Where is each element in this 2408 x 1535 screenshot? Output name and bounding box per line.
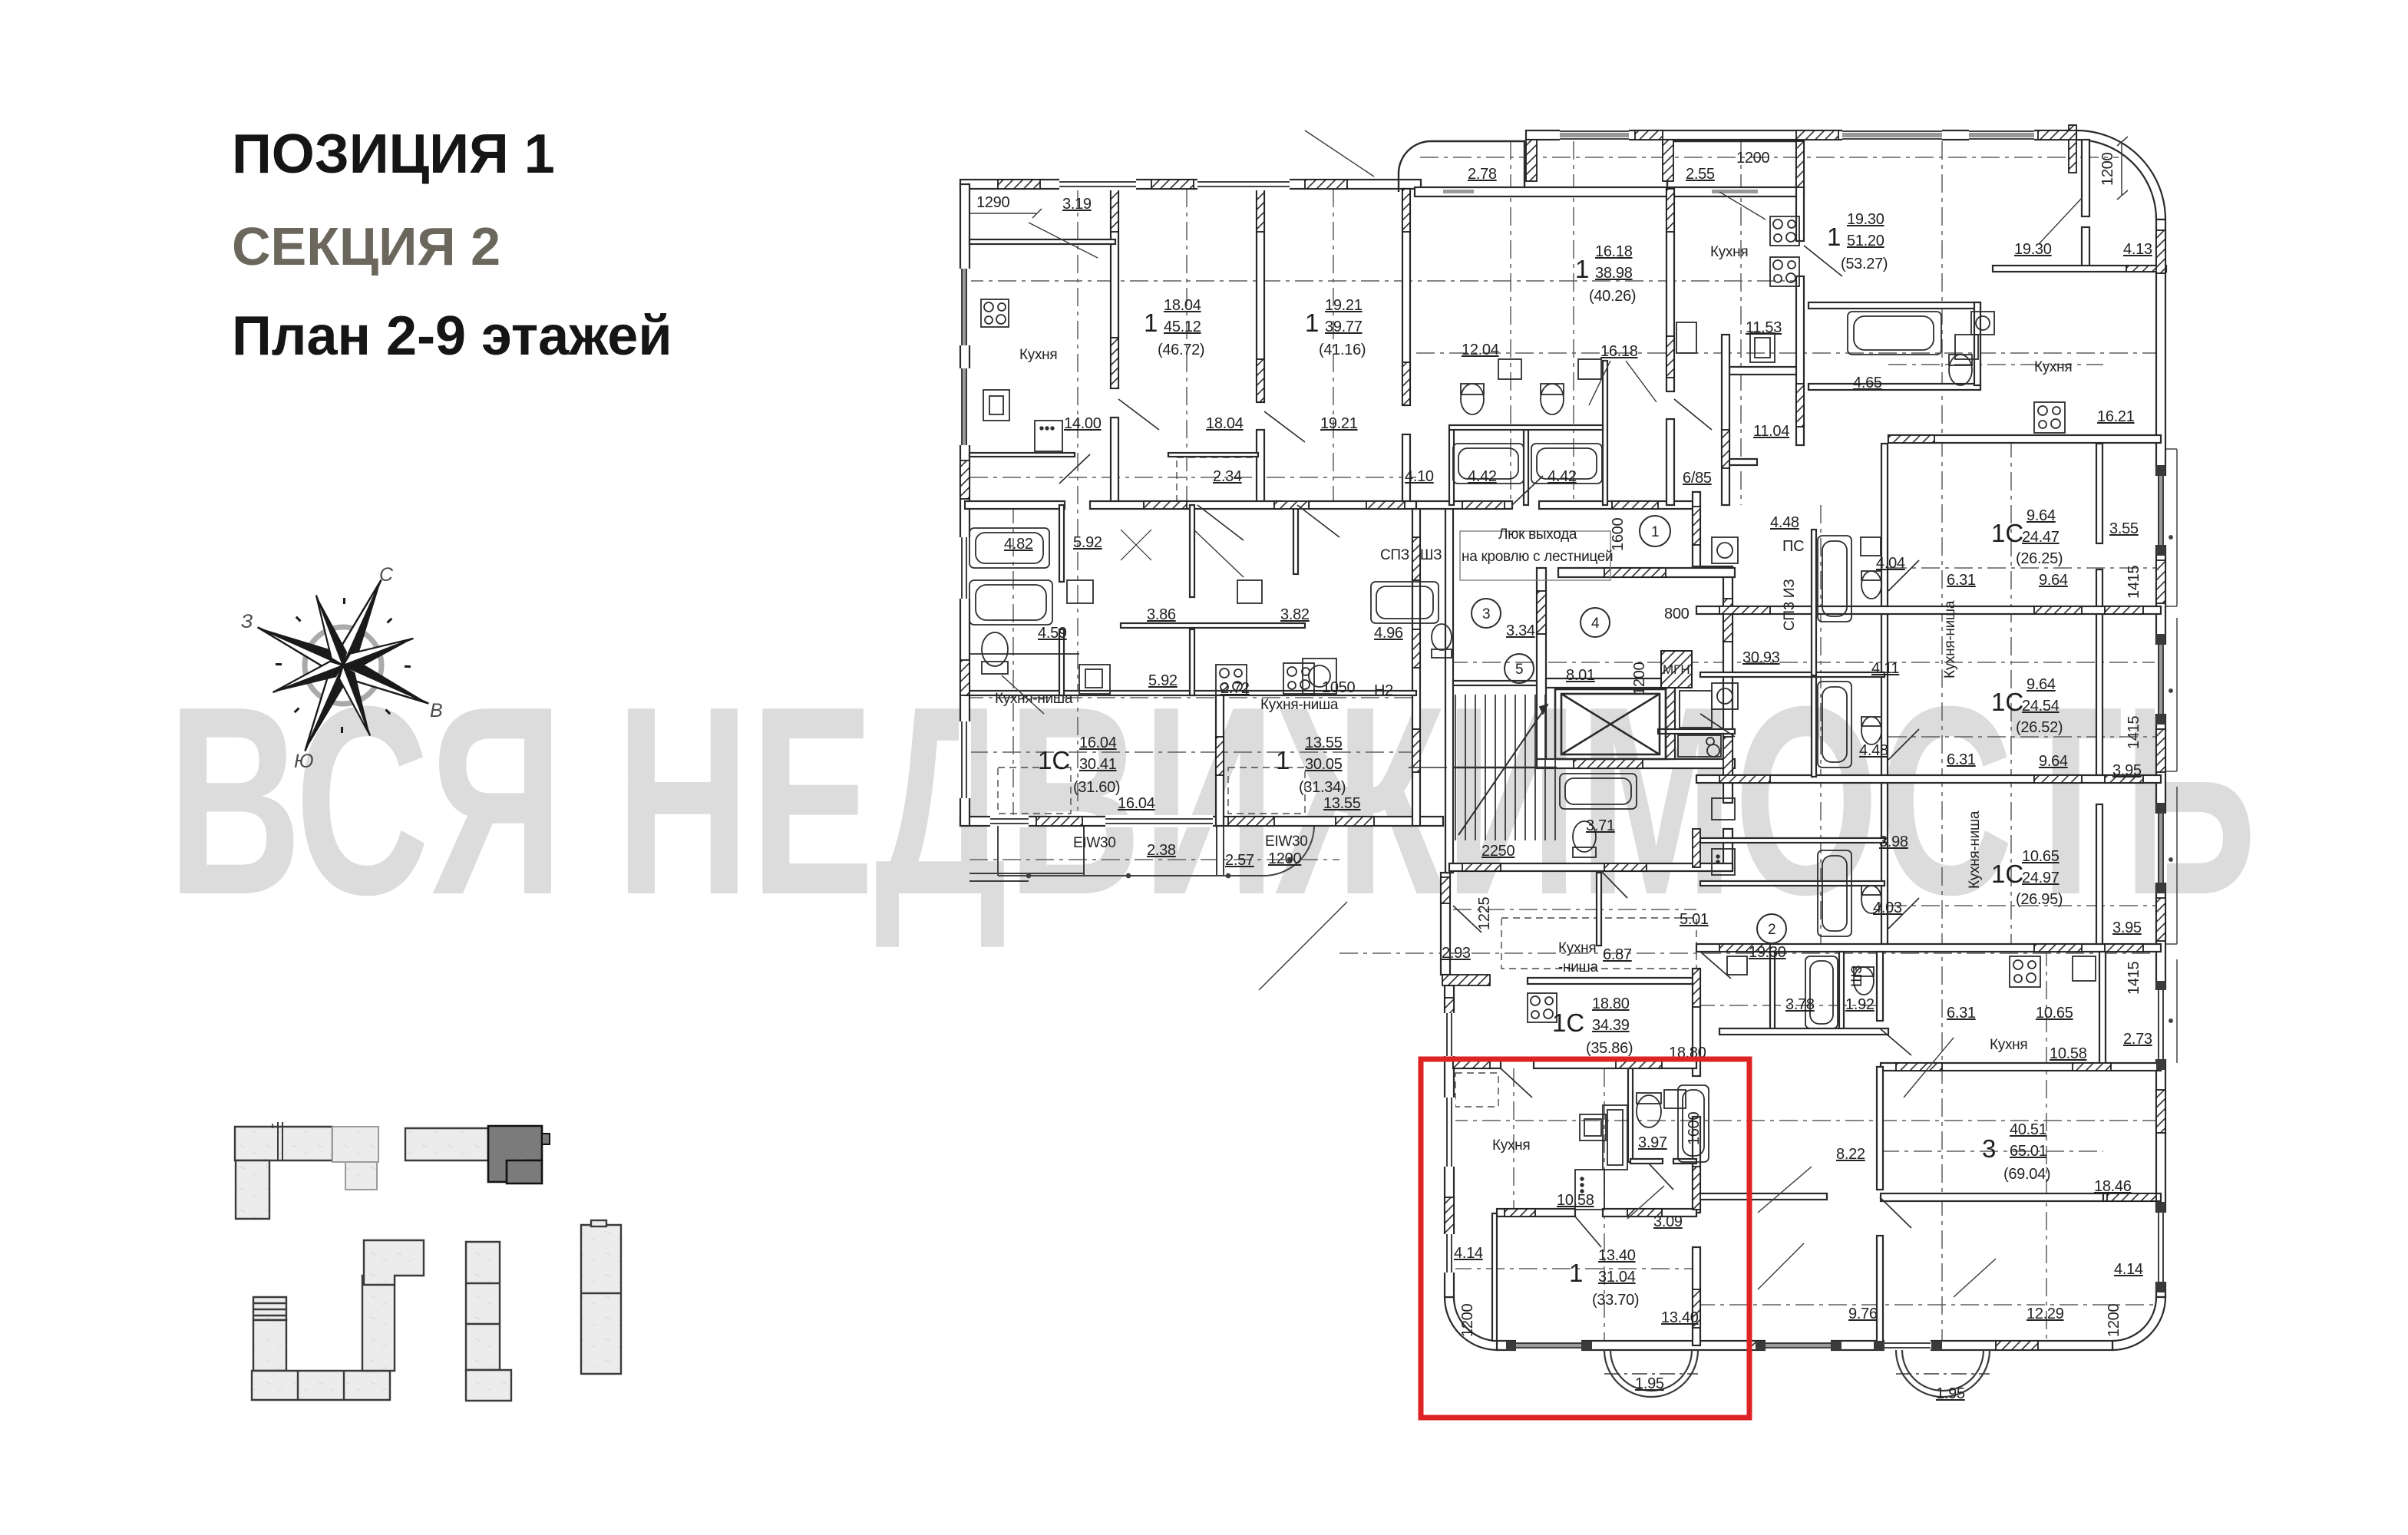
svg-text:1С: 1С [1991,519,2023,547]
svg-text:3.19: 3.19 [1062,196,1092,213]
svg-text:2.72: 2.72 [1221,680,1250,697]
svg-text:(26.95): (26.95) [2016,891,2063,908]
svg-text:8.22: 8.22 [1836,1146,1865,1163]
svg-text:3.97: 3.97 [1638,1134,1667,1151]
svg-text:19.21: 19.21 [1325,297,1363,314]
svg-text:19.30: 19.30 [1847,211,1884,228]
svg-text:18.04: 18.04 [1164,297,1201,314]
svg-text:2.57: 2.57 [1225,852,1254,869]
svg-text:30.41: 30.41 [1079,756,1117,773]
svg-text:2.78: 2.78 [1468,166,1497,183]
svg-text:6/85: 6/85 [1683,470,1712,487]
svg-text:24.47: 24.47 [2022,529,2060,546]
svg-text:(53.27): (53.27) [1841,256,1888,272]
svg-text:4.11: 4.11 [1871,660,1899,677]
svg-text:24.54: 24.54 [2022,698,2060,715]
svg-text:Кухня: Кухня [1492,1137,1530,1154]
svg-text:Кухня: Кухня [1990,1037,2027,1053]
svg-text:3.71: 3.71 [1586,817,1615,834]
svg-text:3.95: 3.95 [2112,919,2142,936]
svg-text:Кухня-ниша: Кухня-ниша [1967,810,1983,889]
svg-text:5.01: 5.01 [1680,911,1709,928]
svg-text:(26.25): (26.25) [2016,550,2063,567]
svg-text:14.00: 14.00 [1064,415,1102,432]
svg-text:16.18: 16.18 [1595,243,1633,260]
svg-text:(35.86): (35.86) [1586,1040,1633,1057]
svg-text:1290: 1290 [976,194,1009,211]
svg-text:Кухня: Кухня [1710,244,1748,260]
svg-text:10.58: 10.58 [2050,1045,2087,1062]
svg-text:2.73: 2.73 [2123,1031,2152,1048]
svg-text:4.82: 4.82 [1004,536,1033,553]
svg-text:3: 3 [1982,1134,1996,1163]
svg-text:3.34: 3.34 [1506,622,1535,639]
svg-text:4.10: 4.10 [1405,468,1434,485]
svg-text:13.40: 13.40 [1661,1309,1699,1326]
svg-text:(46.72): (46.72) [1158,342,1204,358]
svg-text:31.04: 31.04 [1598,1269,1636,1286]
svg-text:19.21: 19.21 [1320,415,1358,432]
svg-text:4.14: 4.14 [1454,1245,1483,1262]
svg-text:Люк выхода: Люк выхода [1498,527,1577,543]
svg-text:4.42: 4.42 [1468,468,1497,485]
svg-text:11.04: 11.04 [1753,423,1789,440]
svg-text:3.55: 3.55 [2109,520,2139,537]
svg-text:5.92: 5.92 [1148,672,1178,689]
svg-text:13.40: 13.40 [1598,1247,1636,1264]
svg-text:1415: 1415 [2126,962,2142,995]
svg-text:9.64: 9.64 [2039,753,2068,770]
svg-text:Кухня-ниша: Кухня-ниша [995,691,1073,707]
svg-text:Кухня-ниша: Кухня-ниша [1260,697,1339,713]
svg-text:3.86: 3.86 [1147,606,1176,623]
svg-text:Ю: Ю [294,751,314,772]
svg-text:2.55: 2.55 [1686,166,1715,183]
svg-text:В: В [430,700,443,721]
svg-text:EIW30: EIW30 [1073,835,1116,851]
svg-text:4.96: 4.96 [1374,625,1403,642]
svg-text:10.65: 10.65 [2022,848,2060,865]
svg-text:1: 1 [1144,309,1158,337]
svg-text:13.55: 13.55 [1323,795,1361,812]
svg-text:1: 1 [1569,1259,1583,1287]
svg-text:800: 800 [1664,606,1690,622]
svg-text:Кухня: Кухня [2034,359,2072,375]
svg-text:4.65: 4.65 [1853,375,1882,391]
svg-text:9.64: 9.64 [2026,507,2056,524]
svg-text:1200: 1200 [2106,1304,2122,1337]
svg-text:2.38: 2.38 [1147,842,1176,859]
svg-text:18.46: 18.46 [2094,1178,2132,1195]
svg-text:1600: 1600 [1686,1112,1703,1145]
svg-text:1.95: 1.95 [1936,1385,1965,1402]
svg-text:10.58: 10.58 [1557,1192,1594,1209]
svg-text:4.04: 4.04 [1876,555,1905,572]
svg-text:(33.70): (33.70) [1592,1292,1639,1309]
svg-text:18.80: 18.80 [1592,995,1630,1012]
svg-text:1: 1 [1651,524,1659,540]
svg-text:1600: 1600 [1610,518,1627,551]
svg-text:3: 3 [1482,606,1490,622]
svg-text:1: 1 [1827,223,1841,251]
svg-text:16.18: 16.18 [1600,343,1638,360]
svg-text:ПОЗИЦИЯ 1: ПОЗИЦИЯ 1 [232,124,555,185]
svg-text:1200: 1200 [1459,1304,1476,1337]
svg-text:19.30: 19.30 [2014,241,2052,258]
svg-text:65.01: 65.01 [2010,1143,2047,1160]
svg-text:6.31: 6.31 [1947,1005,1976,1022]
svg-text:6.87: 6.87 [1603,946,1632,963]
svg-text:9.64: 9.64 [2026,676,2056,693]
svg-text:4.48: 4.48 [1859,742,1888,759]
svg-text:1200: 1200 [2099,153,2116,186]
svg-text:11.53: 11.53 [1746,319,1782,336]
svg-text:(31.34): (31.34) [1299,779,1346,796]
svg-text:EIW30: EIW30 [1265,834,1308,850]
svg-text:4.59: 4.59 [1038,625,1067,642]
svg-text:на кровлю с лестницей: на кровлю с лестницей [1462,549,1613,565]
svg-text:1200: 1200 [1268,850,1301,867]
svg-text:ПС: ПС [1782,538,1804,555]
svg-text:16.21: 16.21 [2097,408,2135,425]
svg-text:9.76: 9.76 [1848,1306,1878,1322]
svg-text:30.05: 30.05 [1305,756,1343,773]
svg-text:4.13: 4.13 [2123,241,2152,258]
svg-text:(26.52): (26.52) [2016,719,2063,736]
svg-text:3.82: 3.82 [1280,606,1310,623]
svg-text:1225: 1225 [1476,897,1493,930]
svg-text:Н2: Н2 [1374,682,1393,699]
svg-text:2.34: 2.34 [1213,468,1242,485]
svg-text:4.03: 4.03 [1873,900,1902,916]
svg-text:(69.04): (69.04) [2003,1166,2050,1183]
svg-text:4.14: 4.14 [2114,1261,2143,1278]
svg-text:45.12: 45.12 [1164,319,1201,335]
svg-text:18.04: 18.04 [1206,415,1244,432]
svg-text:30.93: 30.93 [1742,649,1780,666]
svg-text:План 2-9 этажей: План 2-9 этажей [232,305,672,367]
svg-text:1С: 1С [1038,746,1070,774]
svg-text:1С: 1С [1991,688,2023,716]
svg-text:Кухня: Кухня [1558,940,1596,956]
svg-text:1200: 1200 [1736,150,1769,167]
svg-text:3.09: 3.09 [1653,1213,1683,1230]
svg-text:38.98: 38.98 [1595,265,1633,282]
svg-text:19.30: 19.30 [1749,944,1786,961]
svg-text:МГН: МГН [1663,662,1690,677]
svg-text:СПЗ ИЗ: СПЗ ИЗ [1782,579,1798,631]
svg-text:СПЗ: СПЗ [1380,547,1409,563]
svg-text:5.92: 5.92 [1073,534,1102,551]
svg-text:24.97: 24.97 [2022,870,2060,886]
svg-text:6.31: 6.31 [1947,751,1976,768]
svg-text:Кухня: Кухня [1019,347,1057,363]
svg-text:39.77: 39.77 [1325,319,1363,335]
svg-text:5: 5 [1515,662,1523,678]
svg-text:ШЗ: ШЗ [1849,966,1865,987]
svg-text:ШЗ: ШЗ [1420,547,1442,563]
svg-text:8.01: 8.01 [1566,667,1595,684]
svg-text:1.95: 1.95 [1635,1375,1664,1392]
svg-text:1: 1 [1305,309,1319,337]
svg-text:2250: 2250 [1481,843,1514,860]
svg-text:1: 1 [1276,746,1290,774]
svg-text:Кухня-ниша: Кухня-ниша [1942,600,1958,678]
svg-text:3.98: 3.98 [1879,834,1908,850]
svg-text:1С: 1С [1991,860,2023,888]
svg-text:1200: 1200 [1631,662,1648,695]
svg-text:12.04: 12.04 [1462,342,1499,358]
svg-text:1.92: 1.92 [1845,996,1875,1013]
svg-text:(31.60): (31.60) [1073,779,1120,796]
svg-text:10.65: 10.65 [2036,1005,2073,1022]
svg-text:(40.26): (40.26) [1589,288,1636,305]
svg-text:1050: 1050 [1322,679,1355,696]
svg-text:12.29: 12.29 [2026,1306,2064,1322]
svg-text:3.95: 3.95 [2112,762,2142,779]
svg-text:2.93: 2.93 [1442,945,1471,962]
svg-text:1С: 1С [1552,1008,1584,1037]
svg-text:4: 4 [1591,616,1600,632]
svg-text:4.48: 4.48 [1770,514,1799,531]
svg-text:34.39: 34.39 [1592,1017,1630,1034]
svg-text:6.31: 6.31 [1947,572,1976,589]
svg-text:1: 1 [1575,255,1589,283]
svg-text:2: 2 [1768,922,1775,938]
svg-text:(41.16): (41.16) [1319,342,1366,358]
svg-text:13.55: 13.55 [1305,734,1343,751]
svg-text:16.04: 16.04 [1079,734,1117,751]
svg-text:С: С [379,564,394,586]
svg-text:40.51: 40.51 [2010,1121,2047,1138]
svg-text:З: З [241,611,253,632]
svg-text:4.42: 4.42 [1548,468,1577,485]
svg-text:1415: 1415 [2126,566,2142,599]
svg-text:-ниша: -ниша [1558,959,1598,975]
svg-text:1415: 1415 [2126,716,2142,749]
svg-text:16.04: 16.04 [1118,795,1155,812]
svg-text:51.20: 51.20 [1847,233,1884,249]
svg-text:9.64: 9.64 [2039,572,2068,589]
svg-text:СЕКЦИЯ 2: СЕКЦИЯ 2 [232,216,500,276]
svg-text:3.78: 3.78 [1785,996,1815,1013]
